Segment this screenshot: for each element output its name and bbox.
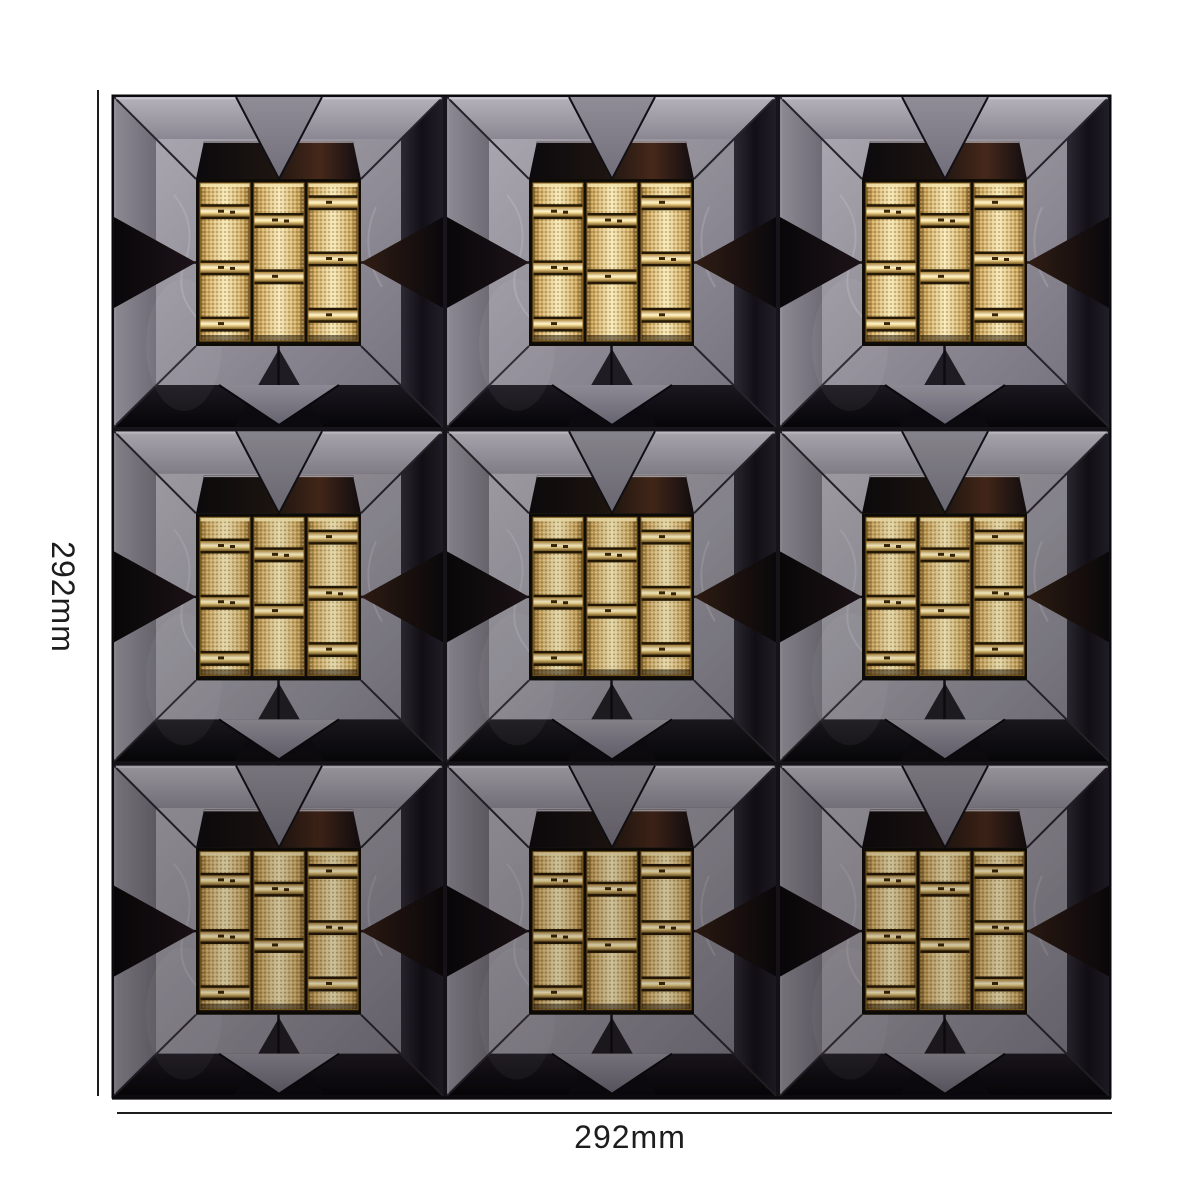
product-image — [0, 0, 1200, 1200]
width-dimension-line — [117, 1112, 1112, 1114]
product-screenshot: 292mm 292mm — [0, 0, 1200, 1200]
tile-modules — [112, 95, 1111, 1100]
height-dimension-line — [97, 90, 99, 1096]
width-dimension-label: 292mm — [560, 1119, 700, 1155]
height-dimension-label: 292mm — [45, 532, 81, 662]
